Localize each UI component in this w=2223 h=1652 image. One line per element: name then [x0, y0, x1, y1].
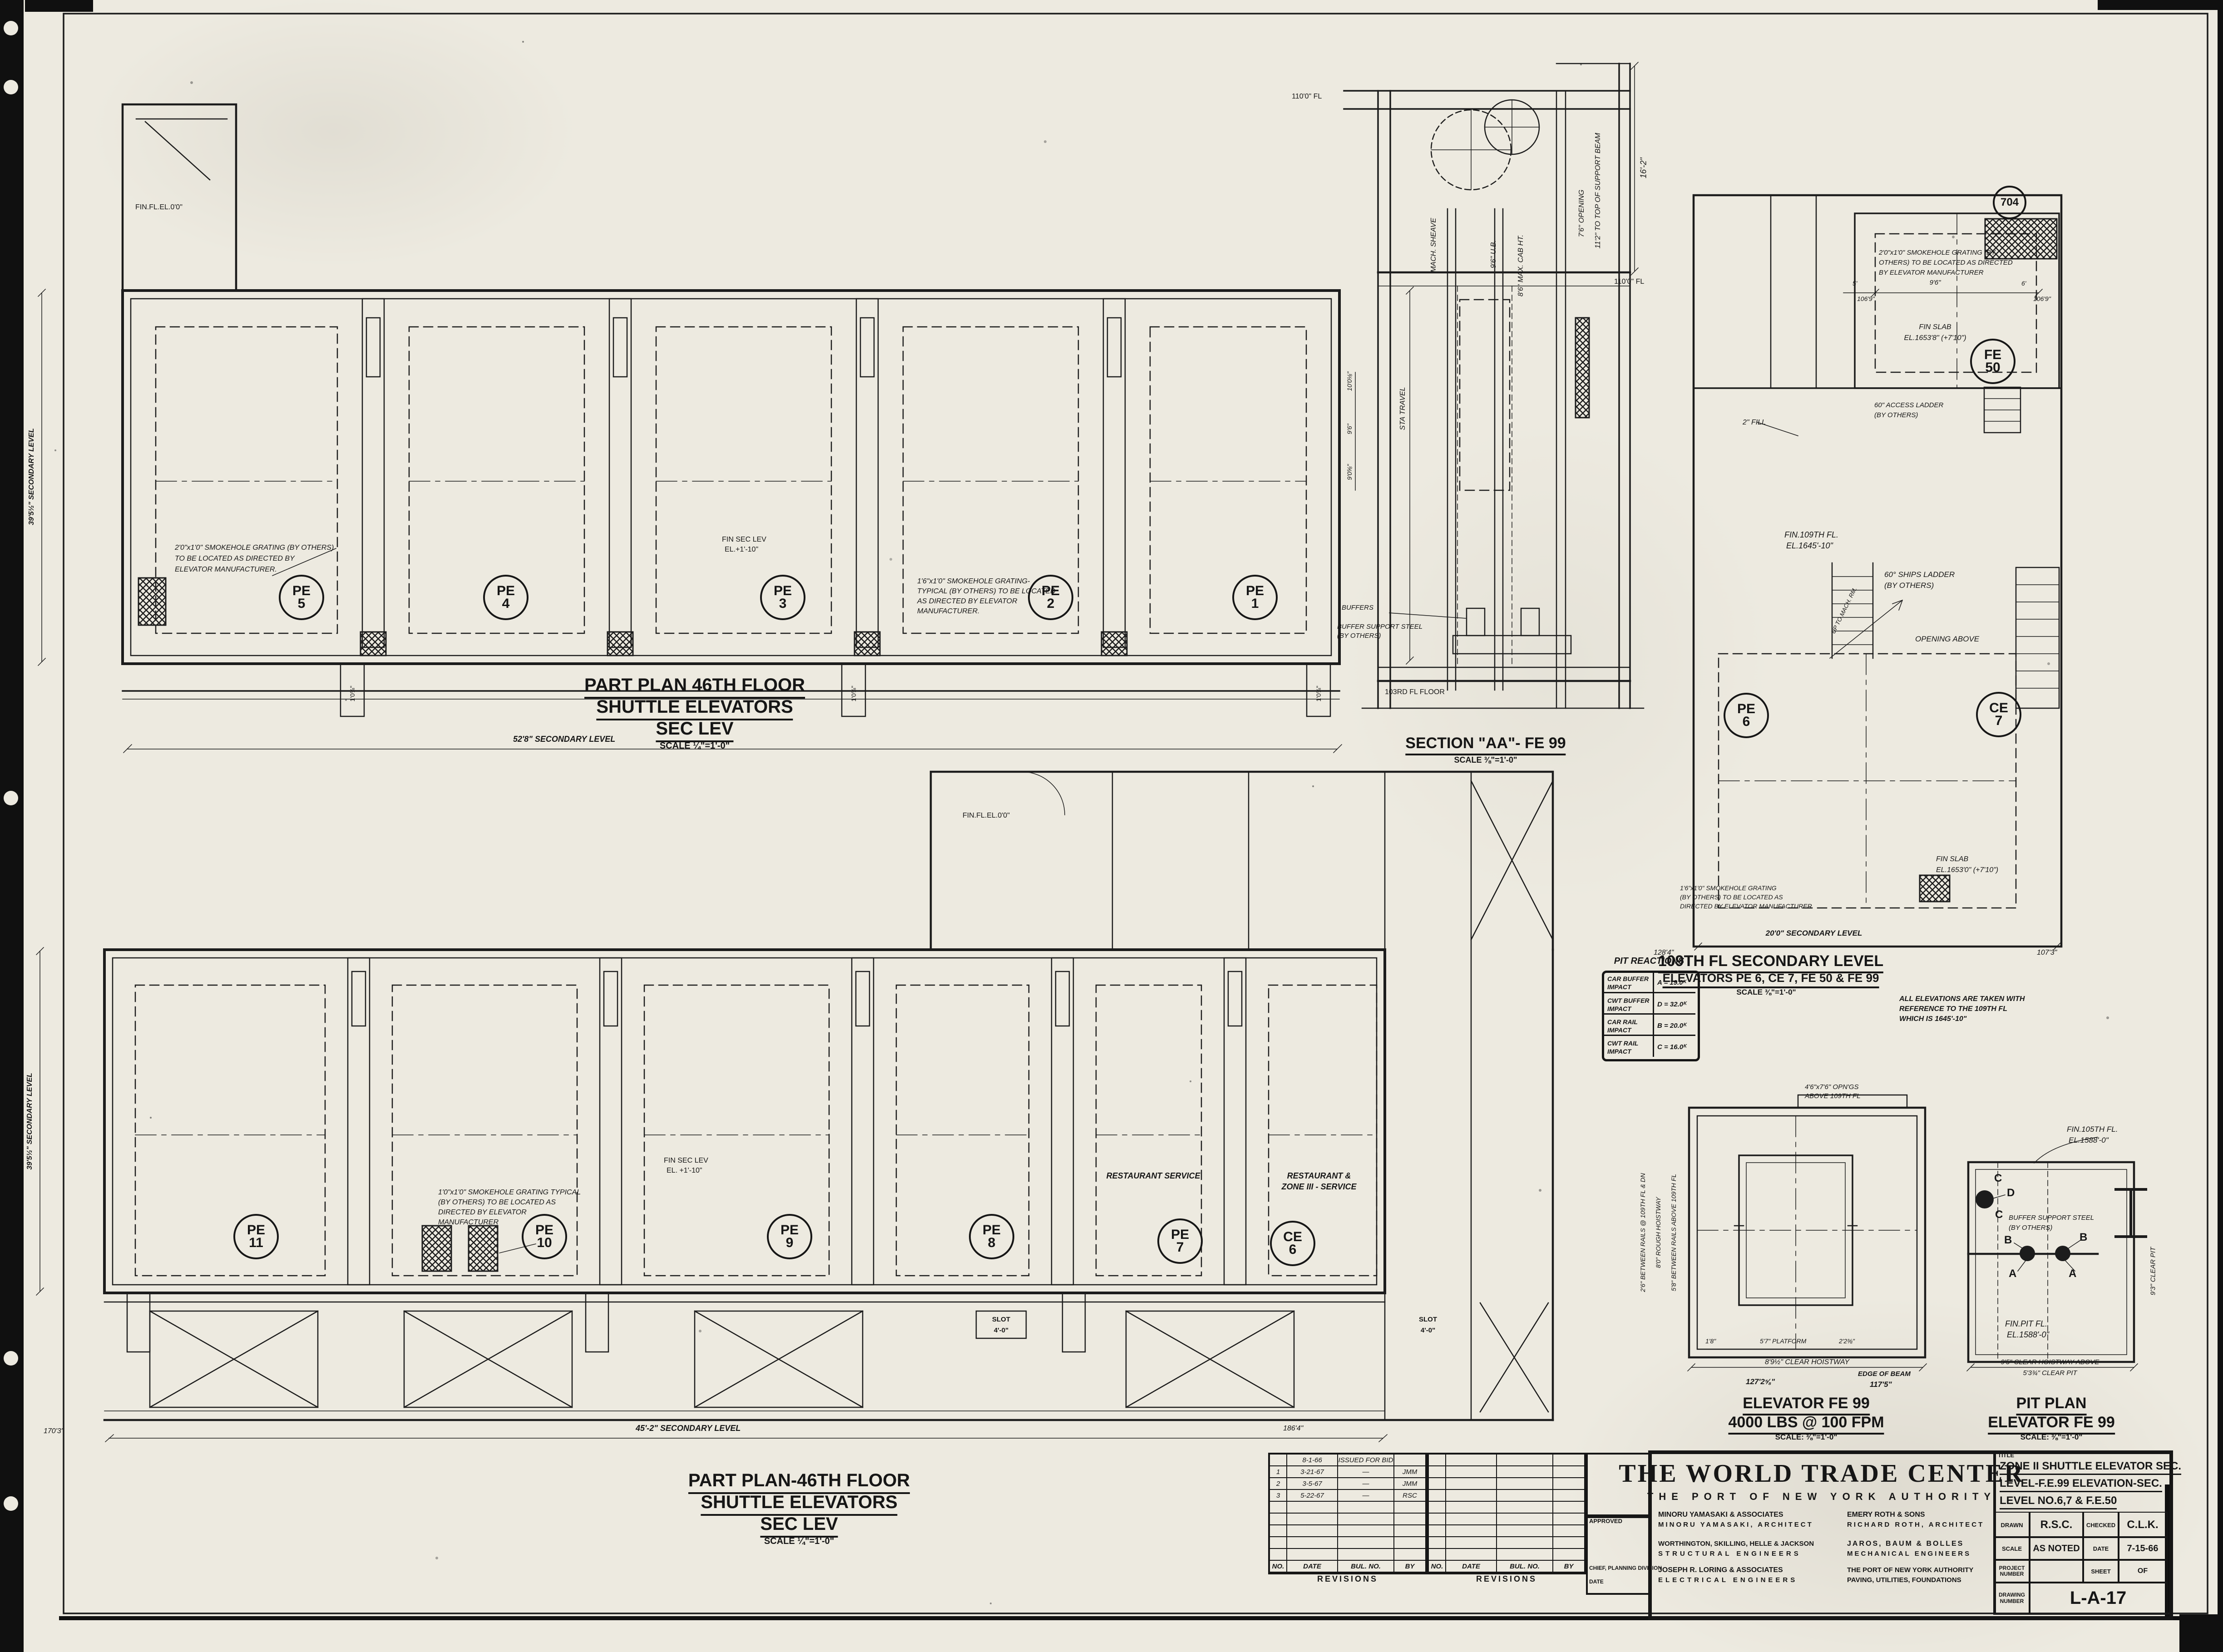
blueprint-sheet: FIN.FL.EL.0'0" 2'0"x1'0" SMOKEHOLE GRATI… — [0, 0, 2223, 1652]
elevation-note-line2: REFERENCE TO THE 109TH FL — [1899, 1005, 2007, 1013]
pit-row2-value: D = 32.0ᴷ — [1657, 1001, 1687, 1008]
upper-smokehole2-line3: AS DIRECTED BY ELEVATOR — [917, 597, 1018, 606]
elevator-bubble-pe2: PE 2 — [1028, 575, 1073, 620]
plan109-ships-ladder-line2: (BY OTHERS) — [1884, 581, 1934, 590]
fe99-rails-109: 2'6" BETWEEN RAILS @ 109TH FL & DN — [1639, 1173, 1646, 1292]
section-fl110-left: 110'0" FL — [1292, 93, 1322, 101]
bubble-num: 6 — [1289, 1243, 1297, 1256]
rev-cell-empty — [1270, 1514, 1287, 1525]
plan109-dim-106-9-right: 106'9" — [2033, 295, 2051, 302]
rev-cell-empty — [1270, 1502, 1287, 1514]
rev-cell-empty — [1497, 1537, 1553, 1549]
rev-cell: 3-21-67 — [1287, 1466, 1338, 1478]
pitplan-fin-pit-line1: FIN.PIT FL. — [2005, 1319, 2047, 1329]
rev-cell: — — [1338, 1478, 1394, 1490]
rev-cell-empty — [1553, 1549, 1584, 1561]
firm6-name: THE PORT OF NEW YORK AUTHORITY — [1847, 1566, 1973, 1574]
pit-point-c2: C — [1995, 1208, 2003, 1221]
rev-cell: ISSUED FOR BID — [1338, 1455, 1394, 1466]
rev-cell-empty — [1446, 1502, 1497, 1514]
bubble-sys: PE — [1737, 703, 1755, 715]
section-scale: SCALE ⅜"=1'-0" — [1454, 755, 1517, 765]
fe99-rough-hoistway: 8'0" ROUGH HOISTWAY — [1655, 1197, 1662, 1268]
rev-cell-empty — [1429, 1490, 1446, 1502]
bubble-sys: FE — [1984, 349, 2001, 361]
revisions-label-1: REVISIONS — [1317, 1574, 1378, 1584]
elevator-bubble-pe10: PE 10 — [522, 1214, 567, 1259]
rev-cell-empty — [1553, 1455, 1584, 1466]
plan109-smoke2-line2: (BY OTHERS) TO BE LOCATED AS — [1680, 893, 1783, 901]
plan109-fin109-line1: FIN.109TH FL. — [1784, 530, 1838, 540]
bubble-sys: CE — [1283, 1231, 1302, 1243]
rev-cell-empty — [1553, 1537, 1584, 1549]
plan109-fin-slab2-line1: FIN SLAB — [1936, 855, 1968, 863]
rev-cell-empty — [1270, 1537, 1287, 1549]
pit-table-rowline — [1602, 1035, 1695, 1036]
bubble-sys: PE — [292, 585, 311, 597]
elevator-bubble-fe50: FE 50 — [1970, 339, 2016, 384]
connector-fin-fl-label: FIN.FL.EL.0'0" — [963, 812, 1010, 820]
bubble-num: 4 — [502, 597, 510, 610]
bubble-num: 50 — [1985, 361, 2000, 374]
rev-cell: — — [1338, 1466, 1394, 1478]
pit-row2-label2: IMPACT — [1607, 1005, 1631, 1012]
upper-plan-title-line2: SHUTTLE ELEVATORS — [596, 696, 793, 720]
pit-point-a2: A — [2069, 1267, 2076, 1280]
rev-cell-empty — [1270, 1549, 1287, 1561]
elevator-bubble-pe9: PE 9 — [767, 1214, 812, 1259]
bubble-num: 3 — [779, 597, 787, 610]
upper-plan-title-line1: PART PLAN 46TH FLOOR — [584, 675, 805, 699]
pit-row3-label2: IMPACT — [1607, 1026, 1631, 1034]
fe99-dim-2-2: 2'2⅜" — [1839, 1337, 1855, 1345]
rev-cell-empty — [1287, 1514, 1338, 1525]
drawn-value: R.S.C. — [2040, 1519, 2073, 1531]
rev-cell — [1270, 1455, 1287, 1466]
rev-cell: JMM — [1394, 1466, 1425, 1478]
plan109-access-ladder-line2: (BY OTHERS) — [1874, 411, 1918, 419]
elevation-note-line3: WHICH IS 1645'-10" — [1899, 1015, 1966, 1023]
plan109-smoke2-line3: DIRECTED BY ELEVATOR MANUFACTURER — [1680, 902, 1812, 910]
bubble-num: 8 — [988, 1237, 996, 1249]
bubble-num: 2 — [1047, 597, 1055, 610]
section-cab-ht: 8'6" MAX. CAB HT. — [1517, 235, 1525, 296]
rev-cell-empty — [1497, 1490, 1553, 1502]
pitplan-buffer-support-line1: BUFFER SUPPORT STEEL — [2009, 1214, 2094, 1222]
rev-cell-empty — [1553, 1478, 1584, 1490]
pitplan-clear-pit-rot: 9'3" CLEAR PIT — [2149, 1247, 2157, 1296]
rev-header-by: BY — [1394, 1561, 1425, 1573]
rev-cell-empty — [1497, 1466, 1553, 1478]
pitplan-fin-pit-line2: EL.1588'-0" — [2007, 1330, 2049, 1340]
drawing-title-line3: LEVEL NO.6,7 & F.E.50 — [2000, 1494, 2117, 1509]
lower-dim-170: 170'3" — [44, 1427, 64, 1435]
elevation-note-line1: ALL ELEVATIONS ARE TAKEN WITH — [1899, 995, 2025, 1003]
pit-point-a: A — [2009, 1267, 2016, 1280]
pitplan-fin105-line2: EL.1588'-0" — [2069, 1136, 2109, 1145]
plan109-dim-9-6: 9'6" — [1930, 279, 1941, 286]
fe99-dim-1-8: 1'8" — [1705, 1337, 1716, 1345]
drawn-label-cell: DRAWN — [1993, 1512, 2030, 1538]
column-bubble-704: 704 — [1993, 186, 2026, 219]
bubble-num: 6 — [1743, 715, 1750, 728]
pit-row4-value: C = 16.0ᴷ — [1657, 1043, 1687, 1051]
firm4-role: MECHANICAL ENGINEERS — [1847, 1550, 1971, 1558]
fe99-scale: SCALE: ⅜"=1'-0" — [1775, 1433, 1838, 1442]
lower-plan-title-line2: SHUTTLE ELEVATORS — [701, 1492, 897, 1516]
rev-cell-empty — [1394, 1514, 1425, 1525]
rev-cell-empty — [1429, 1455, 1446, 1466]
elevator-bubble-pe4: PE 4 — [483, 575, 529, 620]
drawing-number: L-A-17 — [2070, 1588, 2126, 1608]
rev-cell-empty — [1429, 1502, 1446, 1514]
plan109-ships-ladder-line1: 60° SHIPS LADDER — [1884, 570, 1955, 579]
rev-cell-empty — [1497, 1478, 1553, 1490]
upper-smokehole2-line1: 1'6"x1'0" SMOKEHOLE GRATING- — [917, 577, 1030, 586]
plan109-smoke1-line3: BY ELEVATOR MANUFACTURER — [1879, 269, 1984, 276]
plan109-smoke2-line1: 1'6"x1'0" SMOKEHOLE GRATING — [1680, 884, 1777, 892]
revisions-table-2: NO. DATE BUL. NO. BY — [1427, 1453, 1586, 1574]
title-tab-label: TITLE — [1998, 1452, 2014, 1459]
fe99-dim-127: 127'2⅝" — [1746, 1377, 1775, 1386]
restaurant-zone-label-line1: RESTAURANT & — [1287, 1171, 1351, 1181]
rev-cell: JMM — [1394, 1478, 1425, 1490]
bubble-sys: PE — [497, 585, 515, 597]
bubble-sys: PE — [535, 1224, 553, 1237]
bubble-sys: CE — [1989, 702, 2008, 715]
section-fl103: 103RD FL FLOOR — [1385, 688, 1445, 696]
section-title: SECTION "AA"- FE 99 — [1405, 735, 1566, 755]
section-dim-a: 10'0⅛" — [1346, 372, 1353, 391]
bubble-sys: PE — [781, 1224, 799, 1237]
elevator-bubble-pe1: PE 1 — [1232, 575, 1278, 620]
lower-dim-bottom: 45'-2" SECONDARY LEVEL — [636, 1424, 741, 1433]
pit-row3-value: B = 20.0ᴷ — [1657, 1022, 1687, 1030]
rev-cell-empty — [1287, 1502, 1338, 1514]
section-sta-travel: STA TRAVEL — [1399, 387, 1407, 430]
section-support-beam: 11'2" TO TOP OF SUPPORT BEAM — [1594, 133, 1602, 249]
firm1-name: MINORU YAMASAKI & ASSOCIATES — [1658, 1511, 1783, 1519]
lower-fin-sec-line2: EL. +1'-10" — [667, 1167, 702, 1175]
upper-plan-lines — [38, 104, 1342, 753]
sheet-label-cell: SHEET — [2082, 1559, 2119, 1583]
rev-cell-empty — [1338, 1502, 1394, 1514]
upper-smokehole2-line4: MANUFACTURER. — [917, 607, 979, 616]
scale-label-cell: SCALE — [1993, 1536, 2030, 1561]
rev-cell-empty — [1497, 1525, 1553, 1537]
date-label-cell: DATE — [2082, 1536, 2119, 1561]
rev-cell-empty — [1429, 1525, 1446, 1537]
rev-cell-empty — [1446, 1478, 1497, 1490]
plan109-opening-above: OPENING ABOVE — [1915, 635, 1979, 644]
checked-value: C.L.K. — [2127, 1519, 2158, 1531]
rev-cell: 1 — [1270, 1466, 1287, 1478]
pit-point-b: B — [2004, 1234, 2012, 1247]
pitplan-title: PIT PLAN — [2016, 1395, 2087, 1415]
plan109-scale: SCALE ⅜"=1'-0" — [1736, 988, 1796, 997]
section-dim-c: 9'0⅝" — [1346, 464, 1353, 480]
rev-cell-empty — [1429, 1549, 1446, 1561]
lower-fin-sec-line1: FIN SEC LEV — [664, 1157, 708, 1165]
rev-cell-empty — [1446, 1514, 1497, 1525]
elevator-bubble-pe6: PE 6 — [1724, 693, 1769, 738]
rev-header-date: DATE — [1287, 1561, 1338, 1573]
column-number: 704 — [2001, 197, 2019, 207]
rev-cell-empty — [1446, 1525, 1497, 1537]
checked-label: CHECKED — [2086, 1522, 2115, 1529]
rev-cell-empty — [1553, 1490, 1584, 1502]
rev-cell-empty — [1553, 1466, 1584, 1478]
pit-table-rowline — [1602, 1013, 1695, 1015]
lower-smokehole-line3: DIRECTED BY ELEVATOR — [438, 1208, 527, 1217]
rev-cell: 3 — [1270, 1490, 1287, 1502]
pitplan-subtitle: ELEVATOR FE 99 — [1988, 1414, 2115, 1435]
rev-cell-empty — [1446, 1455, 1497, 1466]
rev-cell-empty — [1553, 1514, 1584, 1525]
bubble-num: 10 — [537, 1237, 552, 1249]
plan109-dim6: 6' — [2021, 280, 2026, 287]
upper-fin-sec-line1: FIN SEC LEV — [722, 536, 766, 544]
section-buffer-support-line2: (BY OTHERS) — [1337, 632, 1381, 640]
rev-cell-empty — [1394, 1502, 1425, 1514]
plan109-fin-slab1-line2: EL.1653'8" (+7'10") — [1904, 334, 1966, 342]
rev-cell-empty — [1287, 1549, 1338, 1561]
bubble-sys: PE — [983, 1224, 1001, 1237]
rev-cell: 5-22-67 — [1287, 1490, 1338, 1502]
rev-cell-empty — [1429, 1466, 1446, 1478]
fe99-opng-line1: 4'6"x7'6" OPN'GS — [1805, 1083, 1858, 1091]
section-buffer-support-line1: BUFFER SUPPORT STEEL — [1337, 623, 1423, 631]
firm3-name: WORTHINGTON, SKILLING, HELLE & JACKSON — [1658, 1540, 1814, 1548]
date-label: DATE — [2093, 1545, 2109, 1552]
drawing-number-label: DRAWING NUMBER — [1994, 1592, 2030, 1604]
lower-smokehole-line1: 1'0"x1'0" SMOKEHOLE GRATING TYPICAL — [438, 1188, 581, 1197]
approved-date-label: DATE — [1589, 1579, 1604, 1585]
section-dim-b: 9'6" — [1346, 424, 1353, 434]
rev-header-date: DATE — [1446, 1561, 1497, 1573]
lower-plan-lines — [36, 772, 1553, 1442]
sheet-label: SHEET — [2091, 1568, 2110, 1575]
elevator-bubble-ce7: CE 7 — [1976, 692, 2021, 737]
pit-point-d: D — [2007, 1187, 2015, 1199]
upper-smokehole-note-line2: TO BE LOCATED AS DIRECTED BY — [175, 555, 295, 563]
lower-plan-scale: SCALE ¼"=1'-0" — [764, 1536, 834, 1547]
rev-cell-empty — [1446, 1549, 1497, 1561]
elevator-bubble-pe8: PE 8 — [969, 1214, 1014, 1259]
scale-label: SCALE — [2002, 1545, 2022, 1552]
approved-label: APPROVED — [1589, 1518, 1622, 1525]
slot-dim: 4'-0" — [994, 1327, 1008, 1334]
upper-fin-sec-line2: EL.+1'-10" — [725, 546, 758, 554]
pit-point-b2: B — [2080, 1231, 2087, 1244]
plan109-dim-106-9-left: 106'9" — [1857, 295, 1875, 302]
plan109-title: 109TH FL SECONDARY LEVEL — [1658, 952, 1883, 973]
rev-header-no: NO. — [1429, 1561, 1446, 1573]
plan109-smoke1-line2: OTHERS) TO BE LOCATED AS DIRECTED — [1879, 259, 2013, 266]
firm2-name: EMERY ROTH & SONS — [1847, 1511, 1925, 1519]
drawn-label: DRAWN — [2001, 1522, 2023, 1529]
rev-cell-empty — [1497, 1455, 1553, 1466]
bubble-num: 7 — [1176, 1241, 1184, 1254]
slot-label: SLOT — [992, 1316, 1010, 1323]
rev-cell-empty — [1338, 1514, 1394, 1525]
bubble-num: 1 — [1251, 597, 1259, 610]
section-ub: 9'6" U.B. — [1490, 240, 1498, 268]
slot-dim-2: 4'-0" — [1421, 1327, 1435, 1334]
plan109-dim-107-3: 107'3" — [2037, 949, 2057, 957]
rev-cell-empty — [1287, 1537, 1338, 1549]
plan-109-lines — [1694, 195, 2061, 950]
checked-label-cell: CHECKED — [2082, 1512, 2119, 1538]
rev-cell: 2 — [1270, 1478, 1287, 1490]
restaurant-zone-label-line2: ZONE III - SERVICE — [1281, 1182, 1356, 1192]
rev-cell-empty — [1338, 1537, 1394, 1549]
rev-cell-empty — [1287, 1525, 1338, 1537]
rev-cell-empty — [1446, 1537, 1497, 1549]
plan109-access-ladder-line1: 60" ACCESS LADDER — [1874, 401, 1943, 409]
fe99-title: ELEVATOR FE 99 — [1743, 1395, 1870, 1415]
firm5-name: JOSEPH R. LORING & ASSOCIATES — [1658, 1566, 1783, 1574]
firm2-role: RICHARD ROTH, ARCHITECT — [1847, 1521, 1984, 1529]
pit-table-rowline — [1602, 992, 1695, 993]
upper-smokehole-note-line1: 2'0"x1'0" SMOKEHOLE GRATING (BY OTHERS) — [175, 544, 334, 552]
rev-cell-empty — [1446, 1466, 1497, 1478]
firm3-role: STRUCTURAL ENGINEERS — [1658, 1550, 1801, 1558]
pitplan-buffer-support-line2: (BY OTHERS) — [2009, 1224, 2052, 1232]
upper-door-dim: 1'0⅝" — [850, 686, 857, 702]
elevator-bubble-pe7: PE 7 — [1157, 1218, 1203, 1264]
firm4-name: JAROS, BAUM & BOLLES — [1847, 1540, 1964, 1548]
drawn-value-cell: R.S.C. — [2029, 1512, 2084, 1538]
bubble-sys: PE — [1246, 585, 1264, 597]
bubble-sys: PE — [1042, 585, 1060, 597]
fe99-opng-line2: ABOVE 109TH FL — [1805, 1092, 1861, 1100]
lower-dim-186: 186'4" — [1283, 1425, 1303, 1433]
fe99-dim-117: 117'5" — [1870, 1380, 1892, 1389]
pitplan-scale: SCALE: ⅜"=1'-0" — [2020, 1433, 2083, 1442]
rev-cell: — — [1338, 1490, 1394, 1502]
pit-row4-label2: IMPACT — [1607, 1048, 1631, 1055]
rev-header-by: BY — [1553, 1561, 1584, 1573]
fe99-rails-above: 5'8" BETWEEN RAILS ABOVE 109TH FL — [1670, 1174, 1677, 1291]
rev-cell-empty — [1394, 1537, 1425, 1549]
scale-value: AS NOTED — [2033, 1544, 2080, 1554]
rev-cell-empty — [1338, 1525, 1394, 1537]
pitplan-clear-hoistway-above: 9'5" CLEAR HOISTWAY ABOVE — [2001, 1358, 2099, 1366]
project-number-value-cell — [2029, 1559, 2084, 1583]
bubble-sys: PE — [247, 1224, 265, 1237]
upper-door-dim: 1'0⅝" — [1315, 686, 1322, 702]
rev-cell: 3-5-67 — [1287, 1478, 1338, 1490]
bubble-sys: PE — [774, 585, 792, 597]
elevator-bubble-pe5: PE 5 — [279, 575, 324, 620]
drawing-title-line2: LEVEL-F.E.99 ELEVATION-SEC. — [2000, 1477, 2162, 1492]
rev-header-bul: BUL. NO. — [1338, 1561, 1394, 1573]
bubble-num: 9 — [786, 1237, 794, 1249]
rev-cell-empty — [1446, 1490, 1497, 1502]
restaurant-service-label: RESTAURANT SERVICE — [1107, 1171, 1200, 1181]
drawing-linework — [0, 0, 2223, 1652]
revisions-table-1: 8-1-66 ISSUED FOR BID 1 3-21-67 — JMM 2 … — [1268, 1453, 1427, 1574]
rev-cell-empty — [1553, 1525, 1584, 1537]
plan109-dim5: 5' — [1852, 280, 1857, 287]
plan109-fill-note: 2" FILL — [1743, 419, 1766, 427]
rev-cell-empty — [1497, 1514, 1553, 1525]
elevator-bubble-pe3: PE 3 — [760, 575, 805, 620]
upper-smokehole-note-line3: ELEVATOR MANUFACTURER. — [175, 566, 277, 574]
plan109-fin-slab2-line2: EL.1653'0" (+7'10") — [1936, 866, 1998, 874]
date-value: 7-15-66 — [2127, 1544, 2159, 1554]
bubble-num: 7 — [1995, 715, 2003, 727]
rev-cell-empty — [1497, 1549, 1553, 1561]
rev-cell-empty — [1394, 1549, 1425, 1561]
upper-door-dim: 1'0⅝" — [349, 686, 356, 702]
pit-point-c: C — [1994, 1172, 2002, 1185]
fe99-lines — [1688, 1095, 1927, 1371]
bubble-num: 5 — [298, 597, 306, 610]
pit-row1-label1: CAR BUFFER — [1607, 975, 1649, 982]
upper-dim-left: 39'5½" SECONDARY LEVEL — [28, 428, 36, 525]
revisions-label-2: REVISIONS — [1476, 1574, 1537, 1584]
scale-value-cell: AS NOTED — [2029, 1536, 2084, 1561]
pit-row2-label1: CWT BUFFER — [1607, 997, 1650, 1004]
rev-cell-empty — [1429, 1514, 1446, 1525]
section-opening: 7'6" OPENING — [1578, 190, 1586, 237]
elevator-bubble-ce6: CE 6 — [1270, 1221, 1315, 1266]
rev-cell-empty — [1338, 1549, 1394, 1561]
pit-row1-label2: IMPACT — [1607, 983, 1631, 991]
firm5-role: ELECTRICAL ENGINEERS — [1658, 1576, 1798, 1584]
owner-name: THE PORT OF NEW YORK AUTHORITY — [1647, 1491, 1996, 1502]
fe99-edge-of-beam: EDGE OF BEAM — [1858, 1370, 1911, 1378]
lower-smokehole-line2: (BY OTHERS) TO BE LOCATED AS — [438, 1198, 556, 1207]
fe99-capacity: 4000 LBS @ 100 FPM — [1728, 1414, 1884, 1435]
drawing-title-line1: ZONE II SHUTTLE ELEVATOR SEC. — [2000, 1460, 2181, 1475]
project-number-label: PROJECT NUMBER — [1994, 1565, 2030, 1577]
plan109-dim-bottom: 20'0" SECONDARY LEVEL — [1766, 929, 1862, 938]
checked-value-cell: C.L.K. — [2118, 1512, 2168, 1538]
fe99-platform: 5'7" PLATFORM — [1760, 1337, 1806, 1345]
sheet-of: OF — [2138, 1567, 2148, 1575]
drawing-number-value-cell: L-A-17 — [2029, 1582, 2168, 1615]
section-buffers: BUFFERS — [1342, 604, 1373, 611]
lower-dim-left: 39'5½" SECONDARY LEVEL — [26, 1073, 34, 1170]
lower-plan-title-line3: SEC LEV — [760, 1514, 838, 1538]
pit-row3-label1: CAR RAIL — [1607, 1018, 1638, 1026]
plan109-fin-slab1-line1: FIN SLAB — [1919, 323, 1951, 331]
plan109-smoke1-line1: 2'0"x1'0" SMOKEHOLE GRATING (BY — [1879, 249, 1996, 256]
slot-label-2: SLOT — [1419, 1316, 1437, 1323]
firm6-role: PAVING, UTILITIES, FOUNDATIONS — [1847, 1576, 1961, 1584]
date-value-cell: 7-15-66 — [2118, 1536, 2168, 1561]
lower-smokehole-line4: MANUFACTURER — [438, 1218, 499, 1227]
plan109-fin109-line2: EL.1645'-10" — [1786, 541, 1833, 551]
lower-plan-title-line1: PART PLAN-46TH FLOOR — [688, 1470, 910, 1494]
rev-cell-empty — [1394, 1525, 1425, 1537]
section-dim-16-2: 16'-2" — [1639, 158, 1649, 178]
upper-fin-fl-label: FIN.FL.EL.0'0" — [135, 203, 183, 212]
elevator-bubble-pe11: PE 11 — [233, 1214, 279, 1259]
bubble-sys: PE — [1171, 1228, 1189, 1241]
rev-cell: RSC — [1394, 1490, 1425, 1502]
pit-row4-label1: CWT RAIL — [1607, 1040, 1638, 1047]
bubble-num: 11 — [249, 1237, 263, 1249]
rev-cell-empty — [1270, 1525, 1287, 1537]
rev-cell — [1394, 1455, 1425, 1466]
project-name: THE WORLD TRADE CENTER — [1619, 1459, 2024, 1488]
pitplan-fin105-line1: FIN.105TH FL. — [2067, 1125, 2118, 1134]
firm1-role: MINORU YAMASAKI, ARCHITECT — [1658, 1521, 1813, 1529]
